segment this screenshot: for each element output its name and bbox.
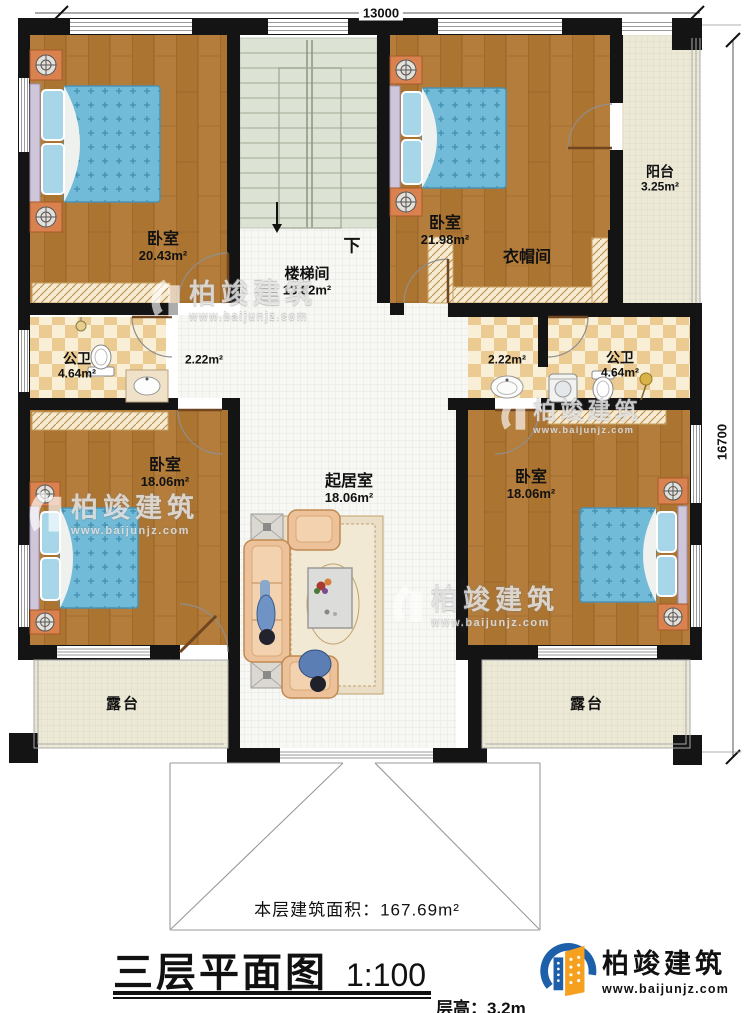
floor-area-value: 167.69m²	[380, 901, 460, 920]
bed	[30, 506, 138, 610]
room-name: 卧室	[507, 469, 555, 487]
window	[280, 749, 433, 761]
floorplan-drawing	[0, 0, 750, 1013]
window	[19, 545, 29, 627]
bed	[30, 84, 160, 204]
stair-down-label: 下	[344, 236, 361, 255]
drawing-title: 三层平面图	[113, 940, 328, 998]
washing-machine-icon	[549, 374, 577, 402]
room-label-bedroom-mid-right: 卧室 18.06m²	[507, 469, 555, 501]
window	[691, 425, 701, 503]
room-area: 4.64m²	[58, 367, 96, 380]
room-label-stairwell: 楼梯间 13.82m²	[283, 266, 331, 297]
floor-height-note: 层高：3.2m	[436, 994, 526, 1013]
window	[438, 19, 562, 34]
room-area: 18.06m²	[141, 475, 189, 490]
staircase	[240, 38, 377, 233]
window	[538, 646, 657, 658]
window	[268, 19, 348, 34]
hall-upper-right-floor	[377, 303, 468, 398]
nightstand-icon	[390, 56, 422, 84]
dimension-right: 16700	[715, 420, 730, 464]
room-name: 卧室	[141, 457, 189, 475]
bed	[580, 506, 687, 610]
room-name: 卧室	[139, 231, 187, 249]
room-area: 4.64m²	[601, 366, 639, 379]
room-area: 20.43m²	[139, 249, 187, 264]
room-label-bedroom-top-right: 卧室 21.98m²	[421, 215, 469, 247]
room-area: 18.06m²	[325, 491, 373, 506]
dimension-top: 13000	[359, 6, 403, 21]
nightstand-icon	[30, 202, 62, 232]
room-label-cloakroom: 衣帽间	[503, 249, 551, 267]
room-label-terrace-right: 露台	[570, 697, 604, 714]
window	[622, 19, 672, 34]
window	[691, 545, 701, 627]
room-label-living-room: 起居室 18.06m²	[325, 473, 373, 505]
floor-height-label: 层高：	[436, 999, 487, 1013]
nightstand-icon	[30, 482, 60, 506]
room-name: 公卫	[601, 350, 639, 366]
room-name: 阳台	[641, 164, 679, 180]
cloakroom-wardrobe-icon	[453, 287, 610, 303]
side-table-icon	[251, 662, 283, 688]
coffee-table	[308, 568, 352, 628]
wardrobe-icon	[548, 410, 666, 424]
room-label-terrace-left: 露台	[106, 697, 140, 714]
room-label-hallway-left: 2.22m²	[185, 353, 223, 366]
room-label-balcony: 阳台 3.25m²	[641, 164, 679, 193]
company-logo-text: 柏竣建筑 www.baijunjz.com	[602, 942, 729, 996]
room-area: 13.82m²	[283, 283, 331, 298]
drawing-title-row: 三层平面图 1:100	[113, 940, 426, 998]
room-label-bathroom-right: 公卫 4.64m²	[601, 350, 639, 379]
company-website: www.baijunjz.com	[602, 982, 729, 996]
floorplan-page: 卧室 20.43m² 楼梯间 13.82m² 下 卧室 21.98m² 衣帽间 …	[0, 0, 750, 1013]
stair-flights	[240, 38, 377, 228]
room-name: 卧室	[421, 215, 469, 233]
nightstand-icon	[30, 50, 62, 80]
underline-thin	[113, 997, 431, 999]
window	[19, 78, 29, 152]
nightstand-icon	[658, 604, 688, 630]
room-area: 21.98m²	[421, 233, 469, 248]
cloakroom-wardrobe-icon	[592, 238, 608, 303]
title-underline	[113, 991, 431, 999]
company-name: 柏竣建筑	[602, 942, 729, 981]
floor-area-label: 本层建筑面积：	[254, 901, 380, 920]
wardrobe-icon	[32, 283, 170, 303]
room-name: 公卫	[58, 351, 96, 367]
floor-height-value: 3.2m	[487, 999, 526, 1013]
room-label-bedroom-top-left: 卧室 20.43m²	[139, 231, 187, 263]
wardrobe-icon	[32, 412, 168, 430]
nightstand-icon	[658, 478, 688, 504]
nightstand-icon	[390, 188, 422, 216]
company-logo-icon	[540, 938, 598, 1000]
room-name: 楼梯间	[283, 266, 331, 283]
window	[19, 330, 29, 392]
room-name: 起居室	[325, 473, 373, 491]
sink-icon	[126, 370, 168, 402]
room-label-bedroom-mid-left: 卧室 18.06m²	[141, 457, 189, 489]
window	[70, 19, 192, 34]
room-name: 衣帽间	[503, 249, 551, 267]
room-area: 3.25m²	[641, 180, 679, 193]
sink-icon	[491, 376, 523, 398]
window	[57, 646, 150, 658]
underline-thick	[113, 991, 431, 995]
room-area: 18.06m²	[507, 487, 555, 502]
tv-icon	[458, 572, 466, 638]
side-table-icon	[251, 514, 283, 540]
drawing-scale: 1:100	[346, 957, 426, 994]
floor-area-note: 本层建筑面积：167.69m²	[254, 896, 460, 921]
room-label-hallway-right: 2.22m²	[488, 353, 526, 366]
nightstand-icon	[30, 610, 60, 634]
company-logo: 柏竣建筑 www.baijunjz.com	[540, 938, 729, 1000]
room-label-bathroom-left: 公卫 4.64m²	[58, 351, 96, 380]
